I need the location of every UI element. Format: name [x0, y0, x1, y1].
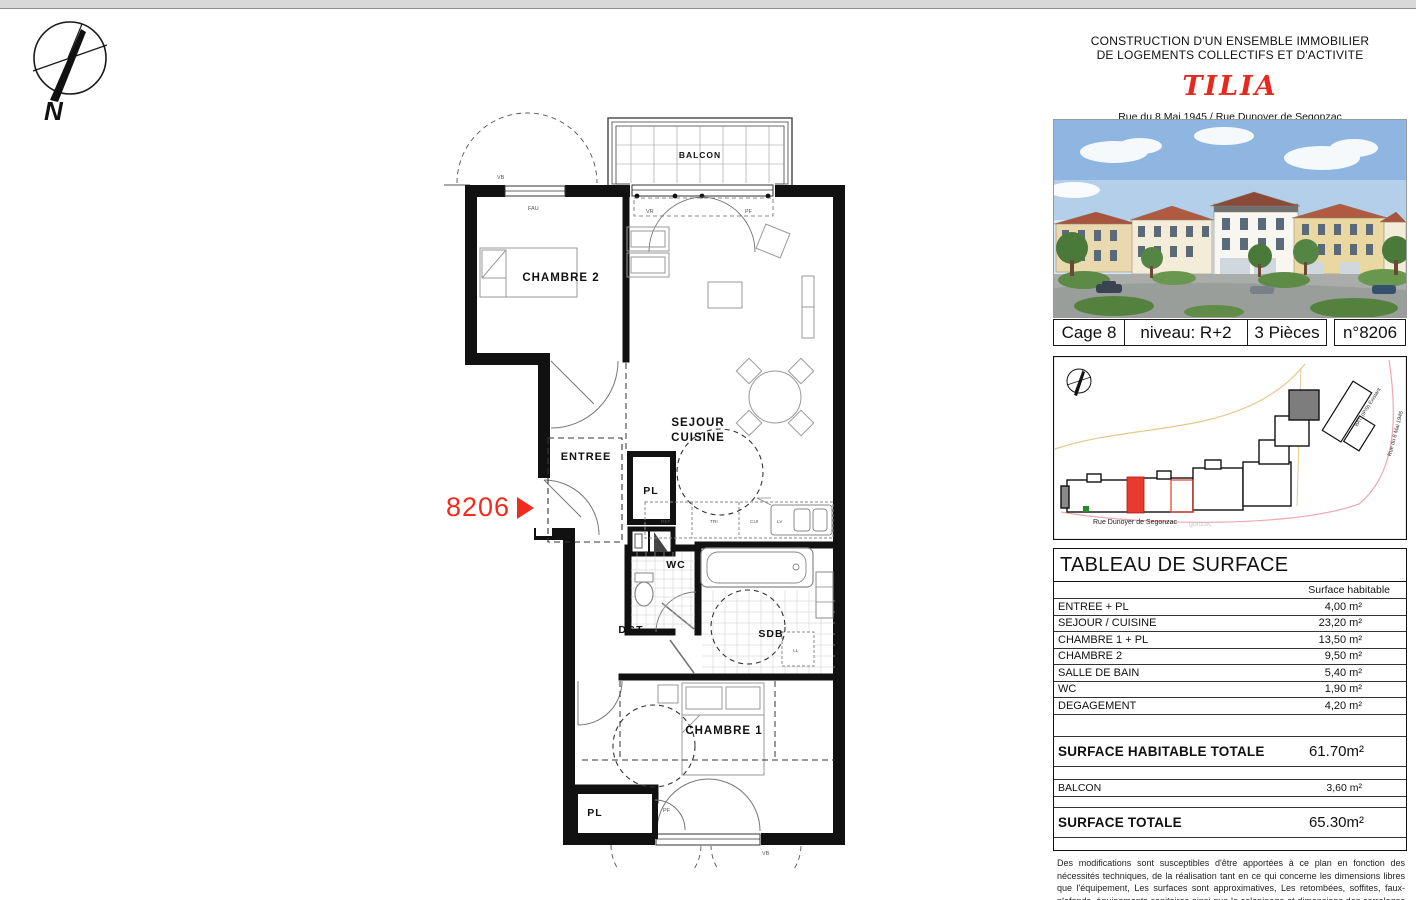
room-label-dgt: DGT	[618, 624, 643, 636]
street-label-echo: gonzac	[1189, 521, 1212, 528]
row-value: 1,90 m²	[1274, 683, 1406, 695]
surface-column-header: Surface habitable	[1054, 582, 1406, 599]
row-value: 4,20 m²	[1274, 700, 1406, 712]
row-value: 23,20 m²	[1274, 617, 1406, 629]
total-row: SURFACE TOTALE 65.30m²	[1054, 808, 1406, 838]
opening-tag-vb-bottom: VB	[762, 851, 770, 857]
row-label: SEJOUR / CUISINE	[1054, 617, 1274, 629]
dining-table	[749, 371, 801, 423]
balcon-row: BALCON 3,60 m²	[1054, 780, 1406, 797]
row-label: WC	[1054, 683, 1274, 695]
row-label: DEGAGEMENT	[1054, 700, 1274, 712]
row-value: 4,00 m²	[1274, 601, 1406, 613]
spacer-row	[1054, 715, 1406, 737]
fixture-tri: TRI	[710, 519, 718, 525]
row-value: 5,40 m²	[1274, 667, 1406, 679]
table-empty-space	[1054, 838, 1406, 851]
table-row: CHAMBRE 2 9,50 m²	[1054, 649, 1406, 666]
opening-tag-vr: VR	[646, 209, 654, 215]
title-line2: DE LOGEMENTS COLLECTIFS ET D'ACTIVITE	[1053, 48, 1407, 62]
room-label-pl-entree: PL	[643, 485, 658, 497]
site-plan: BAT. (IP/9) Existant Rue Dunoyer de Sego…	[1053, 356, 1407, 540]
opening-tag-vb-top: VB	[497, 175, 505, 181]
spacer-row	[1054, 797, 1406, 808]
surface-table: TABLEAU DE SURFACE Surface habitable ENT…	[1053, 548, 1407, 851]
title-line1: CONSTRUCTION D'UN ENSEMBLE IMMOBILIER	[1053, 34, 1407, 48]
info-niveau: niveau: R+2	[1124, 319, 1248, 346]
sejour-furniture	[627, 224, 814, 436]
info-numero: n°8206	[1334, 319, 1406, 346]
highlighted-unit	[1127, 477, 1144, 513]
disclaimer-text: Des modifications sont susceptibles d'êt…	[1057, 857, 1405, 900]
surface-table-title: TABLEAU DE SURFACE	[1054, 549, 1406, 582]
row-value: 13,50 m²	[1274, 634, 1406, 646]
table-row: ENTREE + PL 4,00 m²	[1054, 599, 1406, 616]
room-label-sdb: SDB	[758, 628, 783, 640]
balcon-label: BALCON	[1054, 782, 1274, 794]
subtotal-row: SURFACE HABITABLE TOTALE 61.70m²	[1054, 737, 1406, 767]
table-row: WC 1,90 m²	[1054, 682, 1406, 699]
opening-tag-pf-bottom: PF	[663, 808, 671, 814]
door-chambre1	[578, 681, 622, 725]
subtotal-label: SURFACE HABITABLE TOTALE	[1054, 744, 1274, 759]
sdb-room	[701, 548, 835, 673]
info-cage: Cage 8	[1053, 319, 1125, 346]
room-label-cuisine: CUISINE	[671, 432, 725, 444]
spacer-row	[1054, 767, 1406, 780]
fixture-lv: LV	[777, 519, 783, 525]
project-render-photo	[1053, 119, 1407, 318]
closet-pl-entree	[630, 454, 673, 554]
fixture-ll: LL	[793, 648, 799, 654]
subtotal-value: 61.70m²	[1274, 743, 1406, 760]
north-label: N	[44, 96, 64, 124]
info-pieces: 3 Pièces	[1247, 319, 1327, 346]
table-row: CHAMBRE 1 + PL 13,50 m²	[1054, 632, 1406, 649]
row-label: CHAMBRE 2	[1054, 650, 1274, 662]
door-chambre2	[551, 361, 618, 428]
total-label: SURFACE TOTALE	[1054, 815, 1274, 830]
row-label: SALLE DE BAIN	[1054, 667, 1274, 679]
room-label-sejour: SEJOUR	[671, 417, 724, 429]
room-label-pl-chambre1: PL	[587, 807, 602, 819]
room-label-chambre1: CHAMBRE 1	[685, 725, 762, 737]
table-row: SEJOUR / CUISINE 23,20 m²	[1054, 616, 1406, 633]
room-label-balcon: BALCON	[679, 150, 721, 160]
fixture-ref: REF	[661, 519, 671, 525]
balcony-door-swing	[634, 197, 773, 252]
window-top-edge	[0, 0, 1416, 9]
opening-tag-fau: FAU	[528, 206, 539, 212]
entry-door	[536, 478, 599, 536]
green-marker	[1083, 506, 1089, 512]
table-row: SALLE DE BAIN 5,40 m²	[1054, 665, 1406, 682]
plan-sheet: N 8206 BALCON	[0, 0, 1416, 900]
room-label-chambre2: CHAMBRE 2	[522, 272, 599, 284]
street-label-bottom: Rue Dunoyer de Segonzac	[1093, 519, 1178, 526]
row-value: 9,50 m²	[1274, 650, 1406, 662]
balcon-value: 3,60 m²	[1274, 782, 1406, 794]
interior-walls	[575, 197, 839, 800]
compass-needle	[50, 29, 86, 102]
unit-info-bar: Cage 8 niveau: R+2 3 Pièces n°8206	[1053, 319, 1407, 346]
fixture-cui: CUI	[750, 519, 758, 525]
project-name: TILIA	[1053, 71, 1407, 102]
total-value: 65.30m²	[1274, 814, 1406, 831]
row-label: CHAMBRE 1 + PL	[1054, 634, 1274, 646]
room-label-wc: WC	[666, 559, 686, 571]
room-label-entree: ENTREE	[561, 451, 612, 463]
bathtub	[701, 548, 813, 587]
chambre1-zone-lines	[582, 681, 835, 760]
table-row: DEGAGEMENT 4,20 m²	[1054, 698, 1406, 715]
north-compass-icon: N	[22, 12, 118, 129]
floor-plan: BALCON	[430, 100, 860, 870]
row-label: ENTREE + PL	[1054, 601, 1274, 613]
opening-tag-pf: PF	[745, 209, 753, 215]
